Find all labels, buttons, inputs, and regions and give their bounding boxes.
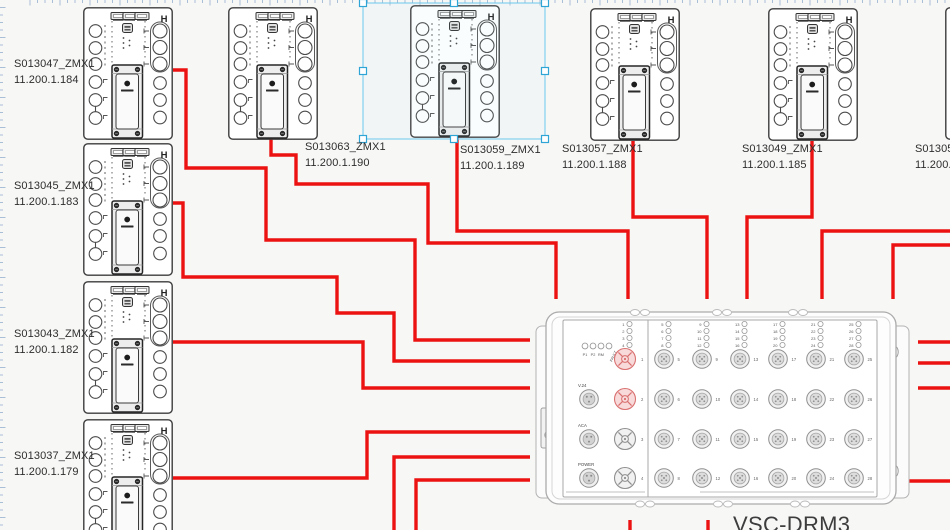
brand-logo-icon bbox=[124, 355, 130, 361]
diagram-svg: HHHHHHHHHP1P2RMFAULTV.24ACAPOWER12341234… bbox=[0, 0, 950, 530]
led-number: 24 bbox=[811, 343, 816, 348]
h-marker-icon: H bbox=[161, 150, 168, 161]
relay-module bbox=[257, 65, 288, 138]
relay-module bbox=[112, 65, 143, 138]
port-number: 28 bbox=[868, 476, 873, 481]
port-number: 20 bbox=[792, 476, 797, 481]
led-number: 14 bbox=[735, 329, 740, 334]
selection-handle[interactable] bbox=[360, 68, 367, 75]
relay-module bbox=[619, 66, 650, 139]
device-label-S013063_ZMX1[interactable]: S013063_ZMX111.200.1.190 bbox=[305, 140, 386, 171]
brand-logo-icon bbox=[124, 81, 130, 87]
device-name: S013053 bbox=[915, 142, 950, 158]
relay-module bbox=[112, 201, 143, 274]
vsc-drm-device[interactable]: P1P2RMFAULTV.24ACAPOWER12341234567856789… bbox=[536, 310, 909, 508]
h-marker-icon: H bbox=[161, 288, 168, 299]
port-number: 12 bbox=[716, 476, 721, 481]
cable-bump bbox=[631, 310, 640, 316]
led-number: 26 bbox=[849, 329, 854, 334]
top-jack-icons bbox=[618, 14, 656, 22]
led-number: 20 bbox=[773, 343, 778, 348]
h-marker-icon: H bbox=[668, 15, 675, 26]
cable-bump bbox=[791, 501, 800, 507]
device-ip: 11.200.1.189 bbox=[460, 159, 541, 175]
wire-4[interactable] bbox=[173, 432, 530, 478]
port-number: 24 bbox=[830, 476, 835, 481]
device-label-S013047_ZMX1[interactable]: S013047_ZMX111.200.1.184 bbox=[14, 57, 95, 88]
device-label-S013045_ZMX1[interactable]: S013045_ZMX111.200.1.183 bbox=[14, 179, 95, 210]
port-number: 15 bbox=[754, 437, 759, 442]
zmx-device-S013047_ZMX1[interactable]: H bbox=[84, 8, 172, 139]
wire-6[interactable] bbox=[416, 480, 530, 530]
h-marker-icon: H bbox=[846, 15, 853, 26]
zmx-device-S013043_ZMX1[interactable]: H bbox=[84, 282, 172, 413]
top-jack-icons bbox=[111, 287, 149, 295]
port-number: 18 bbox=[792, 397, 797, 402]
cable-bump bbox=[799, 310, 808, 316]
device-ip: 11.200.1.183 bbox=[14, 195, 95, 211]
selection-handle[interactable] bbox=[451, 0, 458, 7]
port-number: 14 bbox=[754, 397, 759, 402]
top-jack-icons bbox=[796, 14, 834, 22]
port-number: 27 bbox=[868, 437, 873, 442]
led-number: 27 bbox=[849, 336, 854, 341]
wire-9[interactable] bbox=[633, 141, 707, 299]
led-number: 13 bbox=[735, 322, 740, 327]
device-body bbox=[946, 8, 950, 139]
device-label-S013059_ZMX1[interactable]: S013059_ZMX111.200.1.189 bbox=[460, 143, 541, 174]
cable-bump bbox=[724, 501, 733, 507]
port-label: POWER bbox=[578, 462, 594, 467]
led-number: 12 bbox=[697, 343, 702, 348]
cable-bump bbox=[723, 310, 732, 316]
zmx-device-S013053[interactable]: H bbox=[946, 8, 950, 139]
brand-logo-icon bbox=[269, 81, 275, 87]
device-label-S013057_ZMX1[interactable]: S013057_ZMX111.200.1.188 bbox=[562, 142, 643, 173]
cable-bump bbox=[789, 310, 798, 316]
device-ip: 11.200.1.185 bbox=[742, 158, 823, 174]
port-number: 16 bbox=[754, 476, 759, 481]
wire-12[interactable] bbox=[893, 245, 950, 299]
zmx-device-S013045_ZMX1[interactable]: H bbox=[84, 144, 172, 275]
device-name: S013059_ZMX1 bbox=[460, 143, 541, 159]
port-label: V.24 bbox=[578, 383, 587, 388]
selection-handle[interactable] bbox=[542, 0, 549, 7]
zmx-device-S013049_ZMX1[interactable]: H bbox=[769, 9, 857, 140]
device-ip: 11.200.1.182 bbox=[14, 343, 95, 359]
device-ip: 11.200.1.184 bbox=[14, 73, 95, 89]
port-label: ACA bbox=[578, 423, 587, 428]
h-marker-icon: H bbox=[161, 426, 168, 437]
top-jack-icons bbox=[111, 425, 149, 433]
cable-bump bbox=[636, 501, 645, 507]
selection-handle[interactable] bbox=[360, 0, 367, 7]
led-number: 16 bbox=[735, 343, 740, 348]
brand-logo-icon bbox=[124, 217, 130, 223]
led-number: 22 bbox=[811, 329, 816, 334]
led-number: 10 bbox=[697, 329, 702, 334]
status-led-label: RM bbox=[598, 353, 604, 357]
wire-3[interactable] bbox=[173, 342, 530, 388]
led-number: 21 bbox=[811, 322, 816, 327]
status-led-label: P2 bbox=[591, 353, 596, 357]
led-number: 17 bbox=[773, 322, 778, 327]
device-name: S013047_ZMX1 bbox=[14, 57, 95, 73]
port-number: 13 bbox=[754, 357, 759, 362]
port-number: 11 bbox=[716, 437, 721, 442]
device-ip: 11.200.1.188 bbox=[562, 158, 643, 174]
device-name: S013057_ZMX1 bbox=[562, 142, 643, 158]
relay-module bbox=[797, 66, 828, 139]
diagram-canvas: HHHHHHHHHP1P2RMFAULTV.24ACAPOWER12341234… bbox=[0, 0, 950, 530]
zmx-device-S013037_ZMX1[interactable]: H bbox=[84, 420, 172, 530]
selection-handle[interactable] bbox=[451, 136, 458, 143]
relay-module bbox=[112, 339, 143, 412]
brand-logo-icon bbox=[809, 82, 815, 88]
top-jack-icons bbox=[111, 149, 149, 157]
device-ip: 11.200.1.179 bbox=[14, 465, 95, 481]
led-number: 19 bbox=[773, 336, 778, 341]
port-number: 25 bbox=[868, 357, 873, 362]
cable-bump bbox=[801, 501, 810, 507]
device-name: S013049_ZMX1 bbox=[742, 142, 823, 158]
wire-11[interactable] bbox=[822, 231, 950, 299]
port-number: 17 bbox=[792, 357, 797, 362]
relay-module bbox=[112, 477, 143, 530]
device-ip: 11.200.1.190 bbox=[305, 156, 386, 172]
port-number: 21 bbox=[830, 357, 835, 362]
zmx-device-S013057_ZMX1[interactable]: H bbox=[591, 9, 679, 140]
selection-overlay bbox=[360, 0, 549, 143]
led-number: 18 bbox=[773, 329, 778, 334]
vsc-device-label[interactable]: VSC-DRM3 bbox=[733, 512, 850, 530]
device-label-S013053[interactable]: S01305311.200.1. bbox=[915, 142, 950, 173]
cable-bump bbox=[641, 310, 650, 316]
status-led-label: P1 bbox=[583, 353, 588, 357]
brand-logo-icon bbox=[631, 82, 637, 88]
port-number: 19 bbox=[792, 437, 797, 442]
port-number: 23 bbox=[830, 437, 835, 442]
selection-handle[interactable] bbox=[542, 136, 549, 143]
top-jack-icons bbox=[256, 13, 294, 21]
device-label-S013043_ZMX1[interactable]: S013043_ZMX111.200.1.182 bbox=[14, 327, 95, 358]
device-label-S013049_ZMX1[interactable]: S013049_ZMX111.200.1.185 bbox=[742, 142, 823, 173]
h-marker-icon: H bbox=[161, 14, 168, 25]
device-name: S013063_ZMX1 bbox=[305, 140, 386, 156]
device-name: S013037_ZMX1 bbox=[14, 449, 95, 465]
device-name: S013043_ZMX1 bbox=[14, 327, 95, 343]
led-number: 15 bbox=[735, 336, 740, 341]
device-name: S013045_ZMX1 bbox=[14, 179, 95, 195]
wire-2[interactable] bbox=[173, 203, 530, 361]
device-ip: 11.200.1. bbox=[915, 158, 950, 174]
cable-bump bbox=[713, 310, 722, 316]
port-number: 22 bbox=[830, 397, 835, 402]
zmx-device-S013063_ZMX1[interactable]: H bbox=[229, 8, 317, 139]
led-number: 23 bbox=[811, 336, 816, 341]
port-number: 26 bbox=[868, 397, 873, 402]
led-number: 25 bbox=[849, 322, 854, 327]
selection-handle[interactable] bbox=[542, 68, 549, 75]
port-number: 10 bbox=[716, 397, 721, 402]
top-jack-icons bbox=[111, 13, 149, 21]
brand-logo-icon bbox=[124, 493, 130, 499]
cable-bump bbox=[646, 501, 655, 507]
selection-rect[interactable] bbox=[363, 3, 545, 139]
device-label-S013037_ZMX1[interactable]: S013037_ZMX111.200.1.179 bbox=[14, 449, 95, 480]
cable-bump bbox=[714, 501, 723, 507]
h-marker-icon: H bbox=[306, 14, 313, 25]
led-number: 28 bbox=[849, 343, 854, 348]
